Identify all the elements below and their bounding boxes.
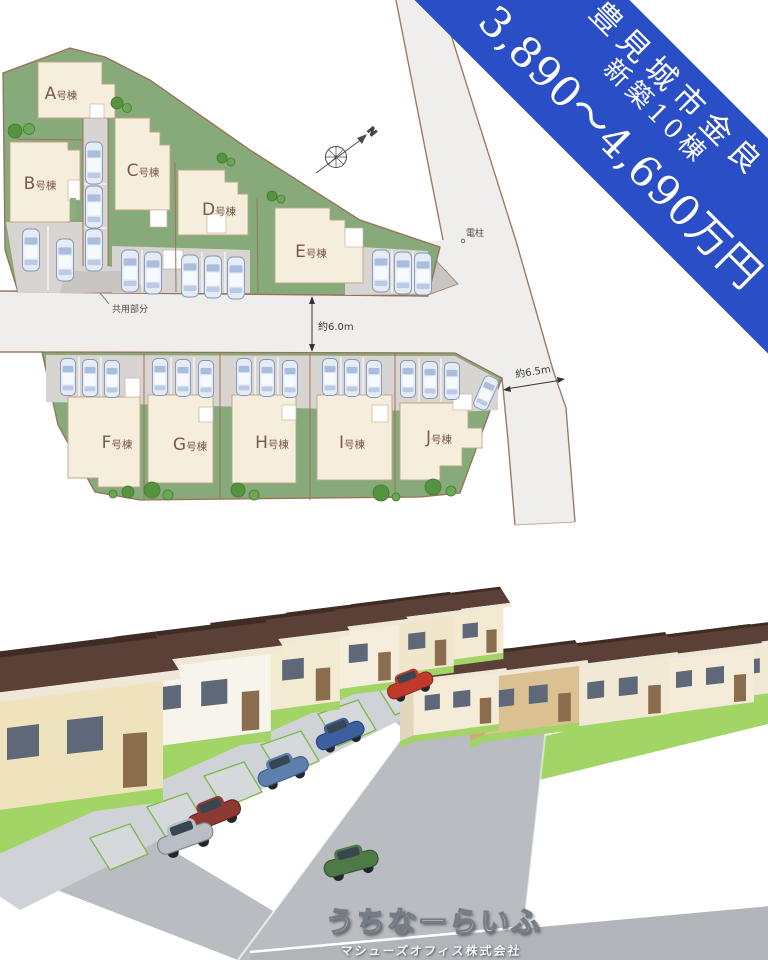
car-top-icon (105, 361, 120, 398)
car-top-icon (86, 186, 103, 228)
car-top-icon (367, 361, 382, 398)
car-top-icon (205, 256, 222, 298)
car-top-icon (237, 359, 252, 396)
car-top-icon (199, 361, 214, 398)
north-label: N (364, 125, 378, 138)
common-area-label: 共用部分 (112, 303, 148, 315)
car-top-icon (122, 250, 139, 292)
car-top-icon (61, 359, 76, 396)
car-top-icon (395, 252, 412, 294)
compass-rose: N (316, 125, 378, 173)
car-top-icon (176, 360, 191, 397)
company-name: マシューズオフィス株式会社 (280, 942, 581, 959)
car-top-icon (23, 229, 40, 271)
footer-logo: うちなーらいふ マシューズオフィス株式会社 (280, 899, 585, 959)
car-top-icon (423, 362, 438, 399)
car-top-icon (83, 360, 98, 397)
car-top-icon (153, 359, 168, 396)
car-top-icon (57, 239, 74, 281)
car-top-icon (401, 361, 416, 398)
car-top-icon (228, 257, 245, 299)
walkway-strip (70, 198, 76, 220)
car-top-icon (86, 229, 103, 271)
car-top-icon (415, 253, 432, 295)
car-top-icon (445, 363, 460, 400)
car-top-icon (283, 361, 298, 398)
north-arrowhead (357, 134, 367, 144)
brand-logo-text: うちなーらいふ (282, 899, 586, 941)
road-width-between-label: 約6.0m (318, 320, 354, 333)
car-top-icon (260, 360, 275, 397)
car-top-icon (145, 252, 162, 294)
car-top-icon (373, 250, 390, 292)
real-estate-flyer: N 約6.0m 約6.5m 電柱 共用部分 A号棟 B号 (0, 0, 768, 960)
car-top-icon (86, 142, 103, 184)
car-top-icon (345, 360, 360, 397)
car-top-icon (323, 359, 338, 396)
car-top-icon (182, 255, 199, 297)
utility-pole-label: 電柱 (466, 227, 484, 239)
